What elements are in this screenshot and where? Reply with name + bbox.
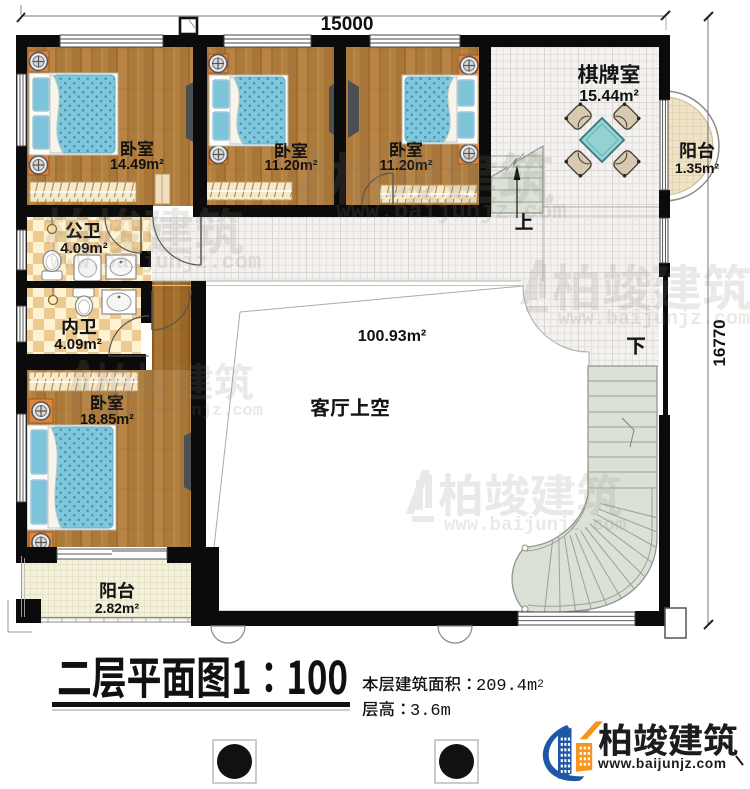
svg-text:3.6m: 3.6m (410, 702, 451, 721)
svg-text:2.82m²: 2.82m² (95, 600, 140, 616)
svg-text:100.93m²: 100.93m² (358, 328, 427, 345)
svg-text:14.49m²: 14.49m² (110, 157, 164, 173)
svg-text:www.baijunjz.com: www.baijunjz.com (597, 756, 727, 771)
svg-text:15000: 15000 (321, 14, 374, 35)
svg-text:4.09m²: 4.09m² (54, 336, 102, 353)
svg-text:www.baijunjz.com: www.baijunjz.com (444, 514, 626, 536)
svg-text:www.baijunjz.com: www.baijunjz.com (558, 308, 750, 331)
svg-text:www.baijunjz.com: www.baijunjz.com (100, 402, 263, 421)
svg-text:209.4m2: 209.4m2 (476, 677, 544, 696)
svg-text:www.baijunjz.com: www.baijunjz.com (50, 250, 261, 275)
svg-text:1.35m²: 1.35m² (675, 160, 720, 176)
svg-text:www.baijunjz.com: www.baijunjz.com (336, 199, 566, 226)
svg-text:15.44m²: 15.44m² (579, 88, 639, 105)
